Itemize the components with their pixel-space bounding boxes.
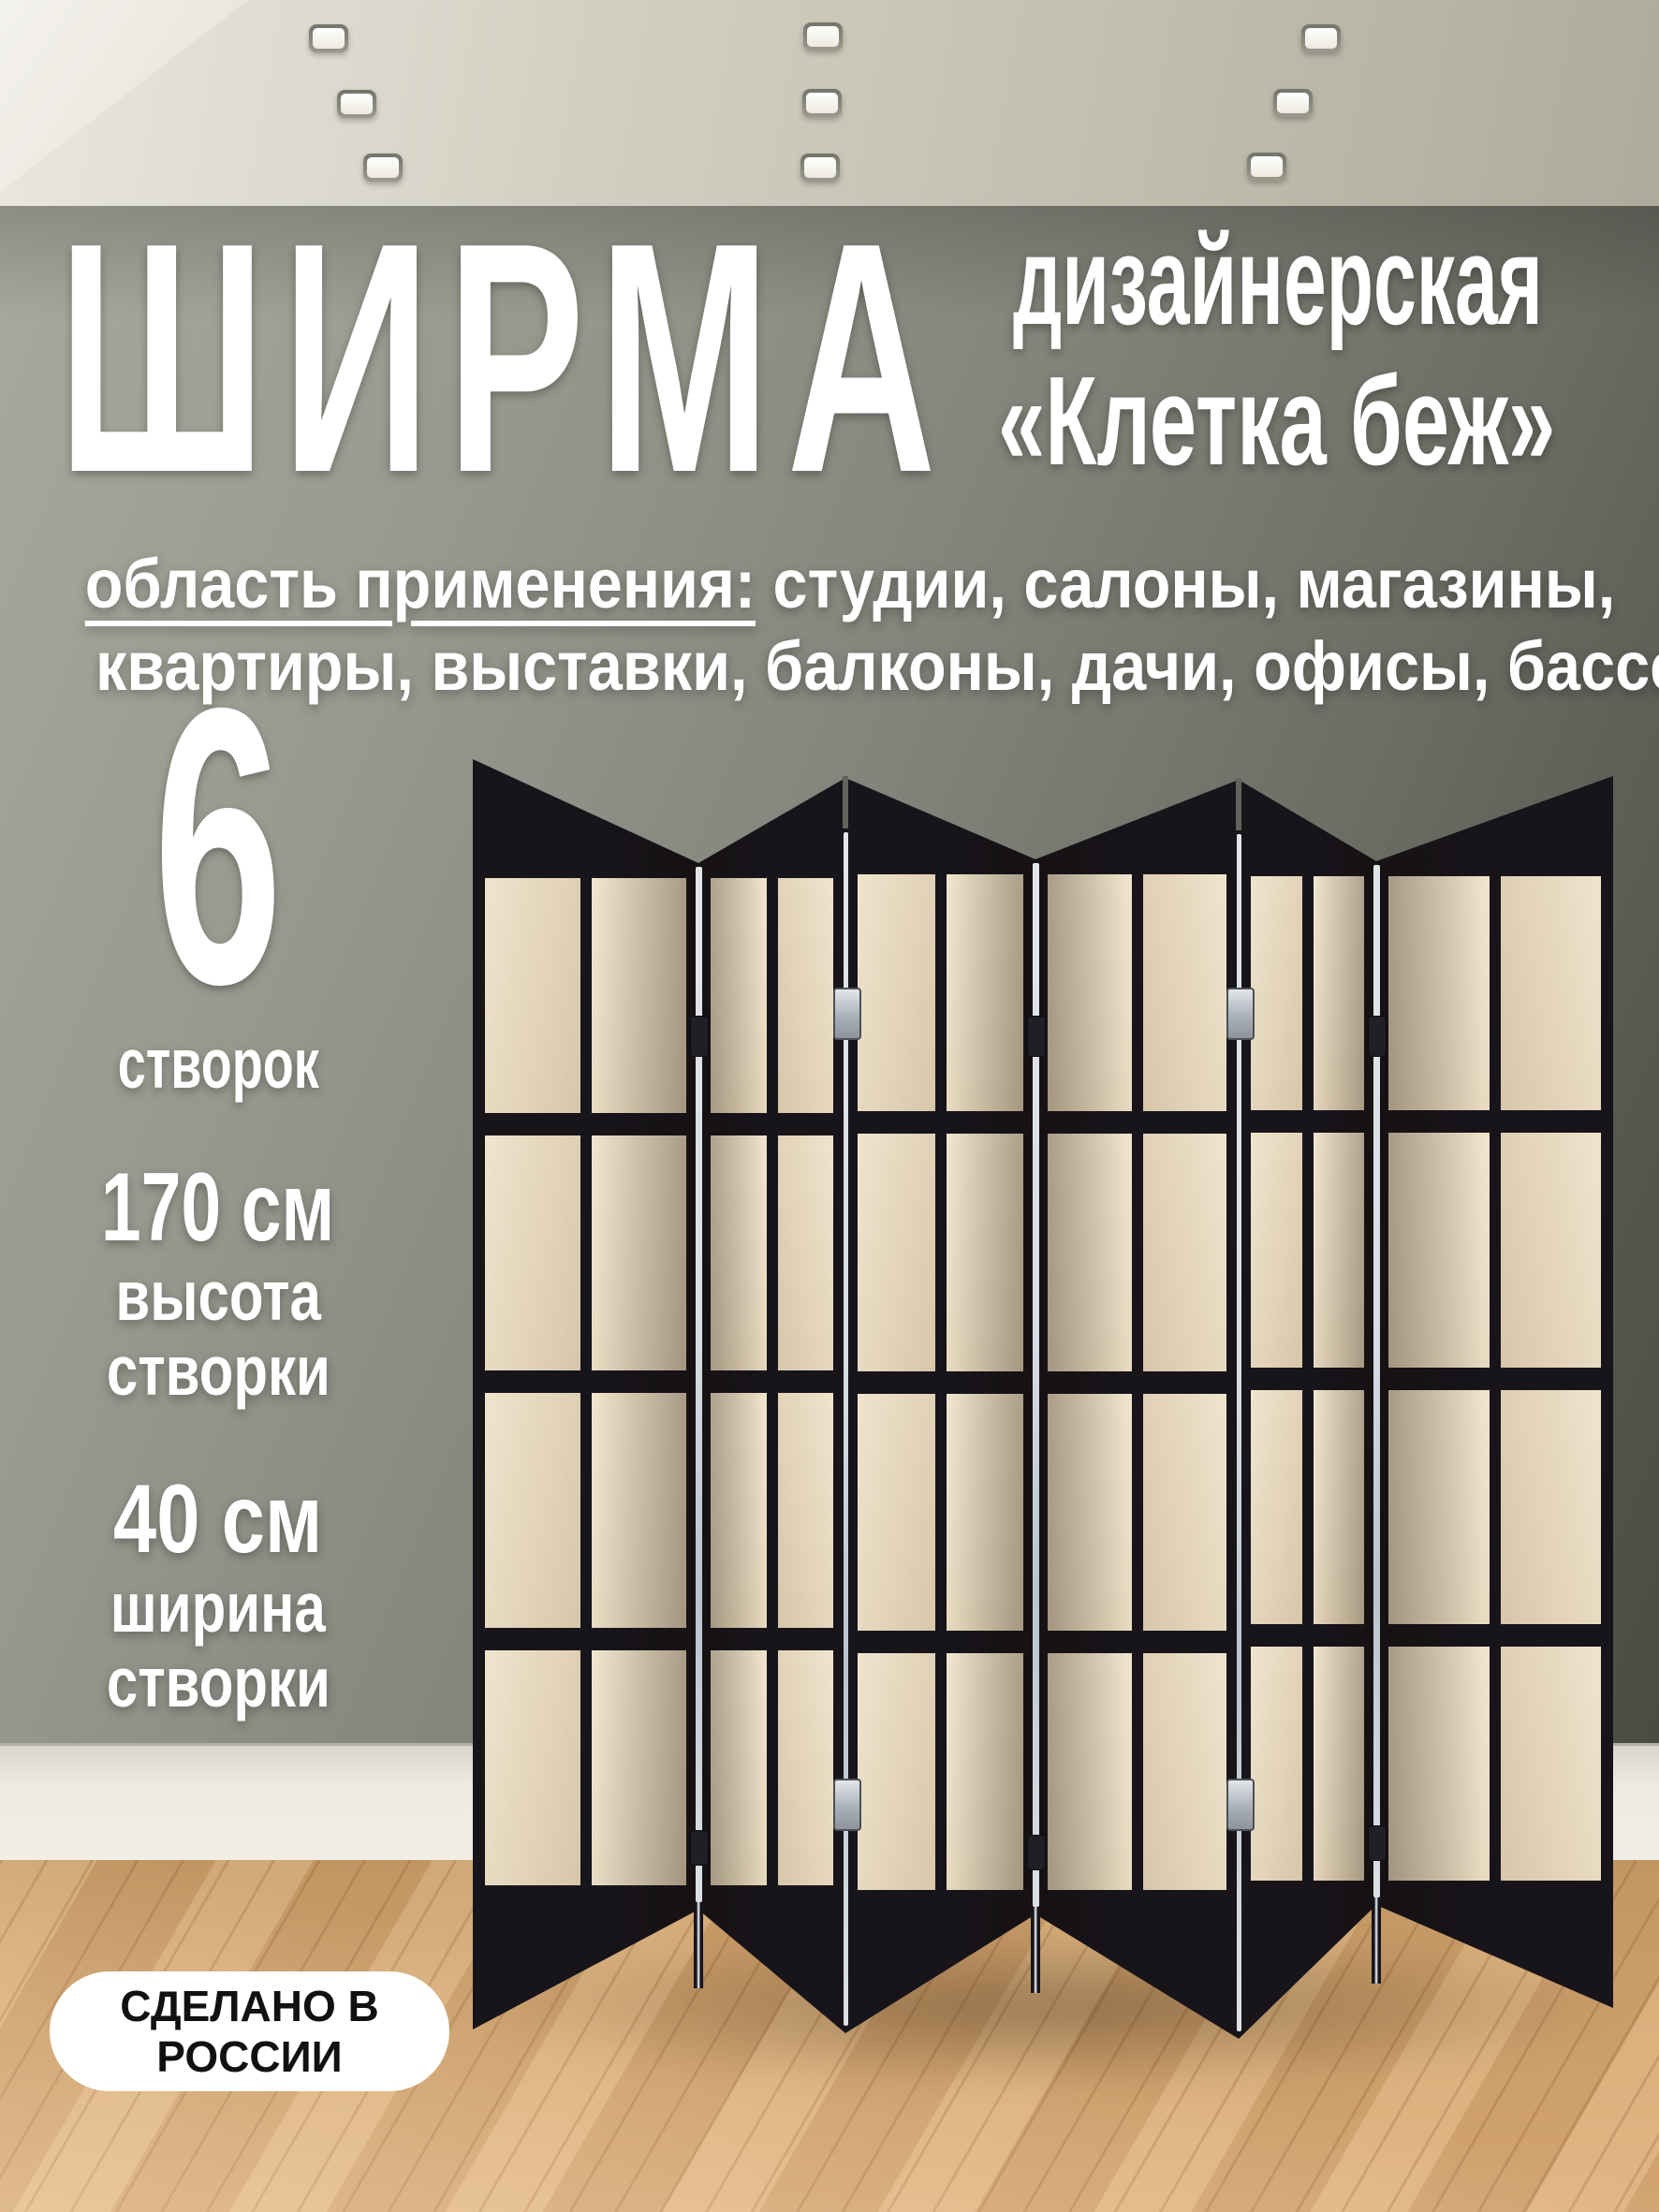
spec-panel-count: 6 створок [31,651,405,1099]
screen-panel-cell [778,1135,834,1370]
product-subtitle-line1: дизайнерская [1013,217,1659,344]
screen-panel-cell [947,1134,1024,1370]
screen-panel-cell [1143,874,1227,1111]
ceiling-spotlight [803,22,843,51]
screen-panel-cell [592,1650,687,1885]
screen-panel [845,749,1035,2050]
spec-label: створок [31,1029,405,1099]
screen-panel-cell [485,1650,580,1885]
ceiling-spotlight [1301,24,1341,52]
screen-panel-cell [711,1393,767,1628]
screen-panel-grid [858,874,1023,1890]
fold-gap [1236,778,1241,830]
screen-panel-grid [1048,874,1226,1890]
screen-panel-cell [1143,1394,1227,1631]
screen-panel [473,749,698,2050]
fold-gap [843,776,848,828]
hinge [1368,1825,1387,1861]
screen-panel-cell [1143,1134,1227,1370]
screen-panel-cell [1251,1647,1302,1881]
screen-panel-cell [1388,1647,1490,1881]
screen-panel-cell [1048,874,1132,1111]
screen-panel [1035,749,1239,2050]
screen-panel-cell [1314,1647,1365,1881]
product-title-text: ШИРМА [58,195,952,522]
screen-panel-cell [1314,1390,1365,1624]
screen-panel-cell [1048,1134,1132,1370]
product-subtitle-line2: «Клетка беж» [998,358,1659,484]
hinge [1027,1835,1046,1870]
screen-panel [698,749,845,2050]
screen-panel-cell [485,878,580,1113]
screen-panel-cell [858,874,935,1111]
screen-panel-grid [1251,876,1364,1881]
spotlight-bulb [807,26,839,47]
spec-label: створки [31,1646,405,1721]
screen-panel-cell [711,1135,767,1370]
spec-label: ширина [31,1571,405,1646]
hinge [833,1779,861,1831]
spec-label: высота [31,1259,405,1334]
screen-panel-cell [592,1135,687,1370]
hinge [833,988,861,1040]
spotlight-bulb [1251,156,1283,177]
screen-panel-cell [592,1393,687,1628]
product-card: ШИРМА дизайнерская «Клетка беж» область … [0,0,1659,2212]
screen-panel-cell [1048,1653,1132,1890]
screen-panel-cell [947,1394,1024,1631]
ceiling-spotlight [337,90,376,118]
fold-bottom-edge [694,1902,703,1988]
screen-panel-cell [1501,1647,1602,1881]
spotlight-bulb [1305,28,1337,49]
screen-panel-cell [711,878,767,1113]
spotlight-bulb [806,93,838,113]
hinge [1027,1016,1046,1057]
screen-panel-cell [1314,1133,1365,1367]
screen-panel-cell [778,1393,834,1628]
spec-value: 40 см [31,1469,405,1571]
spec-label: створки [31,1334,405,1409]
badge-text-line2: РОССИИ [156,2031,342,2082]
hinge [690,1830,709,1866]
ceiling-spotlight [1273,89,1313,117]
screen-panel-cell [1501,1390,1602,1624]
ceiling-spotlight [802,89,842,117]
room-divider-screen [473,749,1613,2050]
screen-panel-cell [1501,1133,1602,1367]
screen-panel-cell [1314,876,1365,1110]
spotlight-bulb [313,28,345,49]
screen-panel-cell [1251,1133,1302,1367]
screen-panel-cell [1251,876,1302,1110]
applications-line1: область применения: студии, салоны, мага… [0,543,1659,625]
screen-panel-grid [711,878,833,1885]
screen-panel-grid [1388,876,1601,1881]
screen-panel-cell [485,1393,580,1628]
screen-panel-cell [858,1653,935,1890]
spec-panel-height: 170 см высота створки [31,1157,405,1408]
applications-underlined-label: область применения: [85,545,756,623]
spec-value: 170 см [31,1157,405,1259]
screen-panel-cell [711,1650,767,1885]
fold-bottom-edge [1372,1897,1381,1984]
screen-panel [1376,749,1613,2050]
screen-panel-cell [485,1135,580,1370]
screen-panel-cell [1388,876,1490,1110]
screen-panel-cell [947,874,1024,1111]
screen-panel-cell [1143,1653,1227,1890]
spec-value: 6 [31,651,405,1044]
screen-panel-cell [778,1650,834,1885]
screen-panel-grid [485,878,686,1885]
made-in-russia-badge: СДЕЛАНО В РОССИИ [50,1971,449,2091]
fold-bottom-edge [1031,1907,1040,1993]
ceiling-spotlight [1247,153,1286,181]
screen-panel-cell [947,1653,1024,1890]
hinge [1368,1016,1387,1057]
screen-panel-cell [1501,876,1602,1110]
hinge [1226,1779,1255,1831]
spotlight-bulb [341,94,373,114]
badge-text-line1: СДЕЛАНО В [120,1981,379,2031]
screen-panel-cell [858,1134,935,1370]
screen-panel-cell [858,1394,935,1631]
spotlight-bulb [1277,93,1309,113]
screen-panel [1239,749,1376,2050]
screen-panel-cell [1388,1133,1490,1367]
hinge [690,1016,709,1057]
screen-panel-cell [778,878,834,1113]
screen-panel-cell [592,878,687,1113]
ceiling-corner-highlight [0,0,262,201]
screen-panel-cell [1251,1390,1302,1624]
screen-panel-cell [1388,1390,1490,1624]
hinge [1226,988,1255,1040]
screen-panel-cell [1048,1394,1132,1631]
ceiling-spotlight [309,24,348,52]
spec-panel-width: 40 см ширина створки [31,1469,405,1720]
